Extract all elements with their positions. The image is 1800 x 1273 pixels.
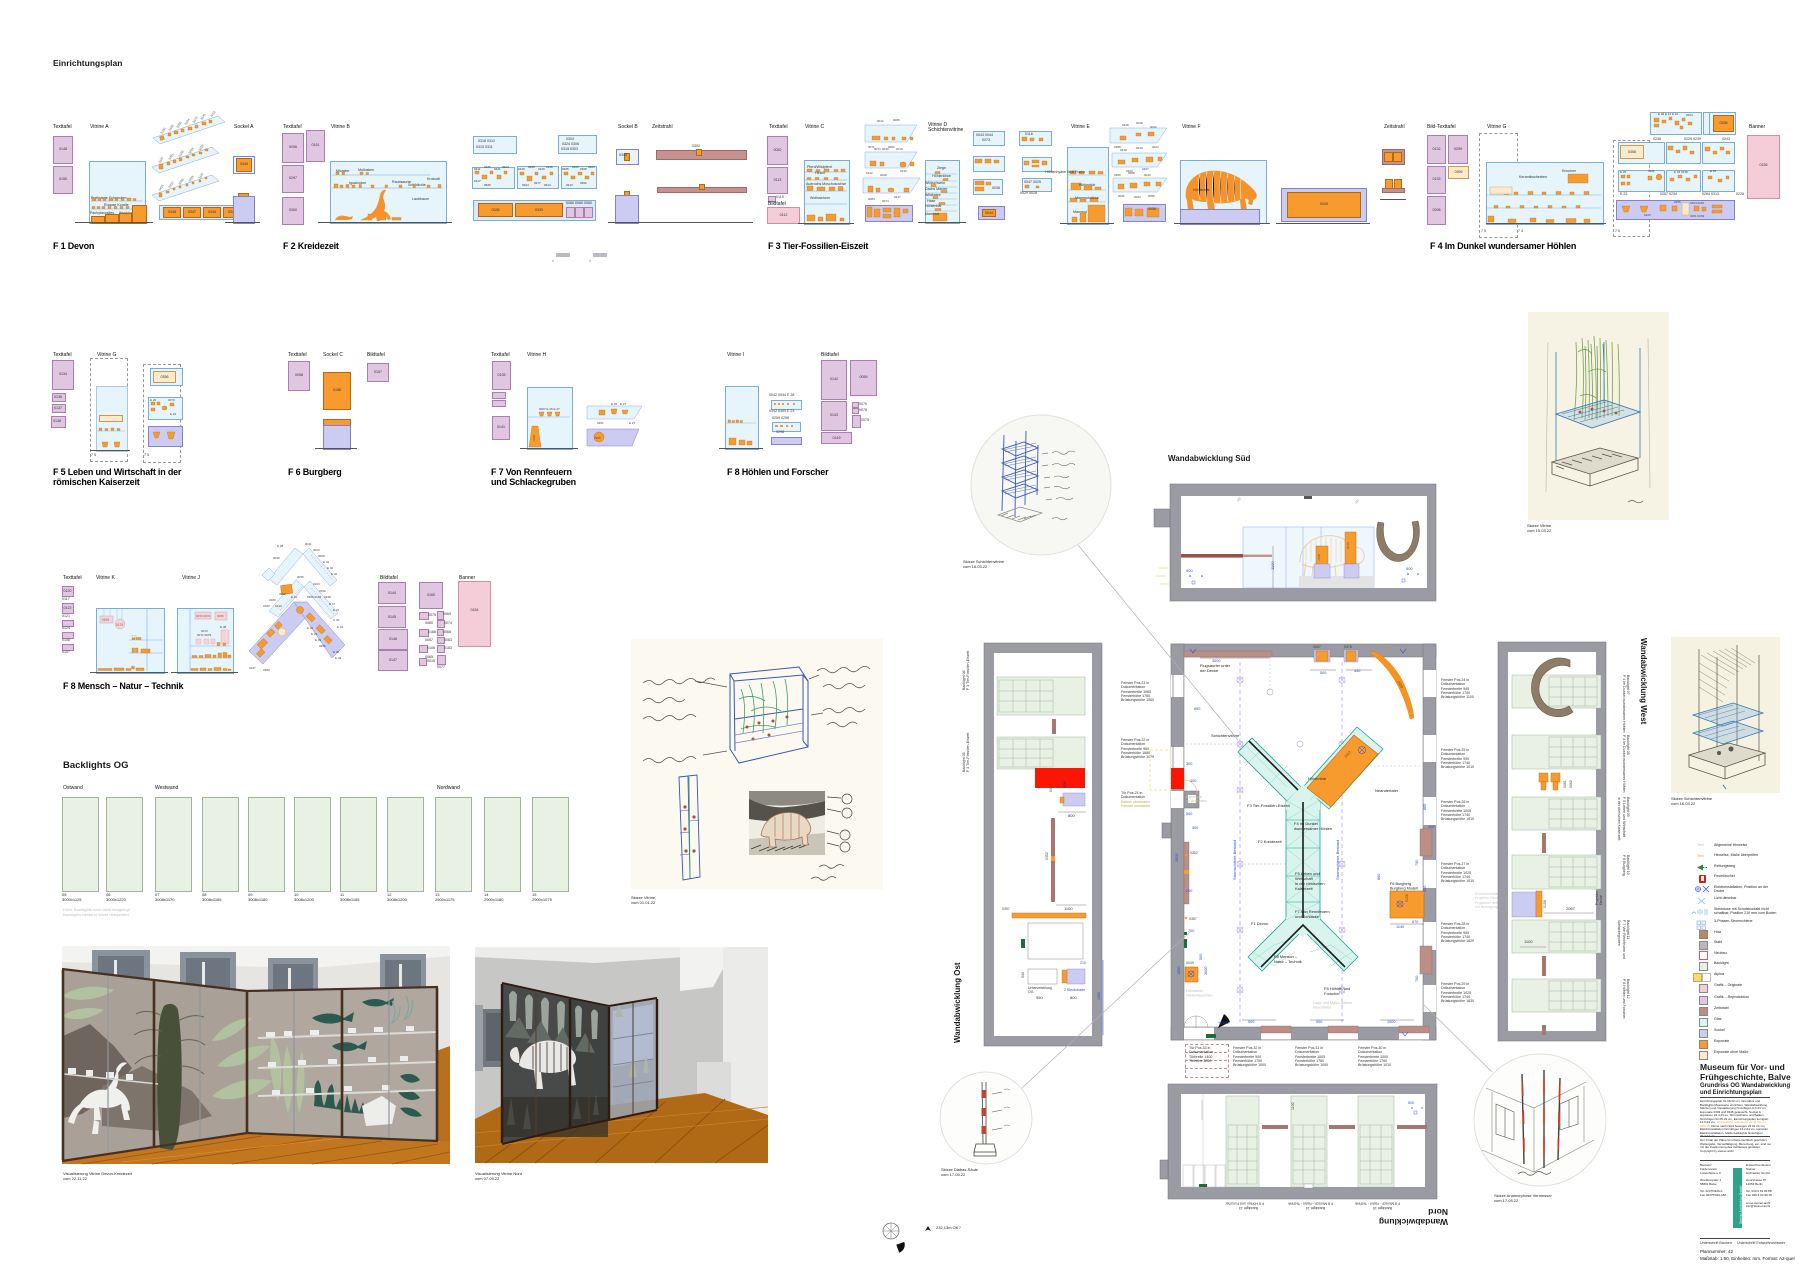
svg-text:E 26: E 26 (611, 402, 618, 406)
svg-text:0425: 0425 (484, 165, 491, 169)
svg-text:0084: 0084 (868, 197, 875, 201)
svg-text:0010: 0010 (896, 147, 903, 151)
svg-text:0061: 0061 (1563, 780, 1567, 788)
svg-text:E 28: E 28 (277, 544, 284, 548)
svg-text:0164: 0164 (184, 118, 191, 126)
svg-text:0052: 0052 (279, 592, 286, 596)
svg-text:670: 670 (1412, 920, 1418, 924)
svg-text:544: 544 (1021, 972, 1025, 978)
svg-text:900: 900 (1248, 1020, 1254, 1024)
svg-text:0169: 0169 (1114, 173, 1121, 177)
svg-text:0255: 0255 (1674, 200, 1681, 204)
svg-text:0024: 0024 (1152, 145, 1159, 149)
svg-text:0340: 0340 (1049, 784, 1053, 792)
svg-text:0041: 0041 (1118, 194, 1125, 198)
svg-text:0165: 0165 (572, 165, 579, 169)
svg-text:0277: 0277 (534, 181, 541, 185)
svg-text:C 30: C 30 (333, 618, 340, 622)
svg-text:F 8 Mensch - Natur - Technik: F 8 Mensch - Natur - Technik (1355, 1202, 1400, 1206)
svg-text:E 43: E 43 (337, 625, 344, 629)
svg-text:0541: 0541 (200, 113, 207, 121)
svg-text:0062: 0062 (1569, 780, 1573, 788)
svg-text:0030: 0030 (273, 556, 280, 560)
svg-text:Stromschiene Bestand: Stromschiene Bestand (1232, 840, 1237, 880)
svg-text:0221: 0221 (1648, 169, 1655, 173)
svg-text:0136: 0136 (900, 169, 907, 173)
svg-text:0352: 0352 (1190, 851, 1198, 855)
svg-text:0423: 0423 (1644, 213, 1651, 217)
svg-text:0378: 0378 (1344, 645, 1352, 649)
svg-text:0526: 0526 (484, 183, 491, 187)
svg-text:0022: 0022 (1150, 125, 1157, 129)
svg-text:0128: 0128 (168, 124, 175, 132)
svg-text:0007 E 26 E 27: 0007 E 26 E 27 (539, 407, 560, 411)
svg-text:665: 665 (1423, 804, 1427, 810)
svg-text:0028: 0028 (880, 173, 887, 177)
svg-text:Forscher: Forscher (1324, 991, 1340, 996)
svg-text:0183: 0183 (263, 604, 270, 608)
svg-text:0062: 0062 (888, 145, 895, 149)
svg-text:0448: 0448 (1120, 148, 1127, 152)
svg-text:1140: 1140 (1396, 925, 1404, 929)
svg-text:Decke: Decke (1599, 895, 1603, 905)
svg-text:0355: 0355 (594, 436, 601, 440)
svg-text:0071 0079: 0071 0079 (197, 633, 212, 637)
svg-text:0421: 0421 (494, 167, 501, 171)
svg-text:1100: 1100 (1270, 561, 1275, 570)
svg-text:F 8 Mensch - Natur - Technik: F 8 Mensch - Natur - Technik (1288, 1202, 1333, 1206)
svg-text:E 42: E 42 (323, 560, 330, 564)
svg-text:0449: 0449 (1136, 146, 1143, 150)
svg-text:Backlight 13: Backlight 13 (1239, 1206, 1258, 1210)
svg-text:0362: 0362 (580, 181, 587, 185)
svg-text:E 40: E 40 (327, 566, 334, 570)
svg-text:wundersamer Höhlen: wundersamer Höhlen (1294, 826, 1332, 831)
svg-text:1100: 1100 (1064, 906, 1073, 911)
svg-text:0055: 0055 (1148, 194, 1155, 198)
svg-text:300: 300 (1192, 826, 1198, 830)
svg-text:zu Anfassen: zu Anfassen (1186, 799, 1207, 803)
svg-text:0367: 0367 (1317, 554, 1321, 561)
svg-text:0211: 0211 (210, 110, 217, 118)
svg-text:0352: 0352 (1045, 852, 1049, 860)
svg-text:0180: 0180 (263, 668, 270, 672)
svg-text:700: 700 (1188, 929, 1194, 933)
svg-text:500: 500 (1199, 954, 1203, 960)
svg-text:0158: 0158 (1543, 900, 1547, 908)
svg-text:Schichtenvitrine: Schichtenvitrine (1211, 733, 1240, 738)
svg-text:2900: 2900 (1175, 854, 1179, 862)
svg-text:950: 950 (1036, 995, 1043, 1000)
svg-text:0455: 0455 (319, 644, 326, 648)
svg-text:400: 400 (1062, 781, 1067, 788)
svg-text:0378: 0378 (1346, 542, 1350, 549)
svg-text:500: 500 (1186, 812, 1192, 816)
svg-text:0005: 0005 (893, 118, 900, 122)
svg-text:0049: 0049 (1186, 961, 1194, 965)
svg-text:0073: 0073 (874, 147, 881, 151)
svg-text:0357: 0357 (1189, 917, 1197, 921)
svg-text:Stromschiene Bestand: Stromschiene Bestand (1335, 840, 1340, 880)
svg-text:und Schlacke: und Schlacke (1295, 914, 1320, 919)
svg-text:0201: 0201 (597, 421, 604, 425)
svg-text:0261 0263: 0261 0263 (1690, 214, 1705, 218)
svg-text:0073: 0073 (168, 398, 175, 402)
svg-text:F6 Burgberg: F6 Burgberg (1390, 882, 1411, 886)
svg-text:0057: 0057 (1313, 645, 1321, 649)
svg-text:0158: 0158 (1405, 894, 1409, 902)
svg-text:0308: 0308 (580, 167, 587, 171)
svg-text:0417: 0417 (474, 179, 481, 183)
svg-text:300: 300 (1186, 762, 1192, 766)
svg-text:0064: 0064 (1134, 195, 1141, 199)
svg-text:900: 900 (1316, 1020, 1322, 1024)
svg-text:790: 790 (1415, 860, 1419, 866)
svg-text:überprüfen: überprüfen (1313, 1006, 1331, 1010)
svg-text:0411: 0411 (474, 167, 481, 171)
svg-text:E 25: E 25 (1620, 170, 1627, 174)
svg-text:0264 0262: 0264 0262 (1690, 201, 1705, 205)
svg-text:0129: 0129 (538, 167, 545, 171)
svg-text:0238: 0238 (324, 595, 331, 599)
svg-text:0313: 0313 (566, 183, 573, 187)
svg-text:0074: 0074 (882, 199, 889, 203)
svg-text:210: 210 (1080, 961, 1086, 965)
svg-text:Burgberg Modell: Burgberg Modell (1390, 887, 1418, 891)
svg-text:E 41: E 41 (333, 608, 340, 612)
svg-text:860: 860 (1377, 874, 1381, 880)
svg-text:1850: 1850 (1097, 992, 1101, 1000)
svg-text:3000: 3000 (1204, 967, 1208, 975)
svg-text:1850: 1850 (1177, 967, 1181, 975)
svg-text:500: 500 (1406, 566, 1413, 571)
svg-text:0449: 0449 (518, 167, 525, 171)
svg-text:0122: 0122 (866, 171, 873, 175)
svg-text:0523: 0523 (502, 165, 509, 169)
svg-text:450: 450 (1354, 669, 1360, 673)
svg-text:3000: 3000 (1212, 659, 1220, 663)
svg-text:0152: 0152 (319, 589, 326, 593)
svg-text:0179: 0179 (192, 116, 199, 124)
svg-text:Höhlenbär: Höhlenbär (1308, 776, 1327, 781)
svg-text:0183: 0183 (269, 598, 276, 602)
svg-text:Natur – Technik: Natur – Technik (1274, 959, 1302, 964)
svg-text:500: 500 (1186, 568, 1193, 573)
svg-text:0012: 0012 (877, 119, 884, 123)
svg-text:E 39: E 39 (315, 638, 322, 642)
svg-text:Wettertauschen: Wettertauschen (1186, 994, 1213, 998)
svg-text:0324: 0324 (522, 183, 529, 187)
svg-text:OG: OG (1028, 990, 1034, 994)
svg-text:0175: 0175 (116, 623, 123, 627)
svg-text:0143: 0143 (275, 604, 282, 608)
svg-text:F1 Devon: F1 Devon (1251, 921, 1268, 926)
svg-text:500: 500 (1320, 671, 1326, 675)
svg-text:0136: 0136 (546, 165, 553, 169)
svg-text:Neandertaler: Neandertaler (1375, 788, 1399, 793)
svg-text:0029: 0029 (318, 554, 325, 558)
svg-text:E 27: E 27 (629, 421, 636, 425)
svg-text:E 34: E 34 (311, 632, 318, 636)
svg-text:E 49: E 49 (335, 656, 342, 660)
svg-text:der Decke: der Decke (1200, 668, 1219, 673)
svg-text:0357: 0357 (532, 435, 536, 442)
svg-text:E 09 E 12 E 10: E 09 E 12 E 10 (1658, 112, 1679, 116)
svg-text:F3 Tier-Fossilien-Eiszeit: F3 Tier-Fossilien-Eiszeit (1247, 803, 1291, 808)
svg-text:E 45: E 45 (333, 650, 340, 654)
svg-text:F 8 Höhlen und Forscher: F 8 Höhlen und Forscher (1224, 1202, 1264, 1206)
svg-text:E 36: E 36 (307, 626, 314, 630)
svg-text:0021: 0021 (305, 542, 312, 546)
svg-text:500: 500 (1408, 1101, 1414, 1105)
svg-text:E 27: E 27 (620, 402, 627, 406)
svg-text:E 20: E 20 (150, 398, 157, 402)
svg-text:E 40: E 40 (331, 572, 338, 576)
svg-text:Backlight 14: Backlight 14 (1306, 1206, 1325, 1210)
svg-text:E 47: E 47 (329, 602, 336, 606)
svg-text:0200: 0200 (176, 121, 183, 129)
svg-text:F2 Kreidezeit: F2 Kreidezeit (1258, 839, 1282, 844)
svg-text:650: 650 (1194, 707, 1200, 711)
svg-text:0291: 0291 (168, 153, 175, 161)
svg-text:0407: 0407 (1142, 167, 1149, 171)
svg-text:E 18 0238: E 18 0238 (1674, 170, 1688, 174)
svg-text:0914: 0914 (544, 183, 551, 187)
svg-text:0357: 0357 (1002, 907, 1010, 911)
svg-text:Hörstation: Hörstation (1186, 989, 1203, 993)
svg-text:420: 420 (1423, 886, 1427, 892)
svg-text:1000: 1000 (1387, 1020, 1395, 1024)
svg-text:E 24: E 24 (170, 412, 177, 416)
svg-text:E 31: E 31 (291, 595, 298, 599)
svg-text:0018: 0018 (1136, 121, 1143, 125)
svg-text:0197: 0197 (249, 666, 256, 670)
svg-text:0085: 0085 (1128, 171, 1135, 175)
svg-text:2067: 2067 (1566, 906, 1576, 911)
svg-text:0127: 0127 (158, 156, 165, 164)
svg-text:1100: 1100 (1524, 939, 1533, 944)
svg-text:Kaiserzeit: Kaiserzeit (1295, 886, 1313, 891)
svg-text:0023: 0023 (313, 548, 320, 552)
svg-text:0203: 0203 (588, 165, 595, 169)
svg-text:+2160: +2160 (1218, 1021, 1229, 1025)
svg-text:0066: 0066 (217, 614, 224, 618)
svg-text:0305: 0305 (562, 167, 569, 171)
svg-text:700: 700 (1415, 976, 1419, 982)
svg-text:0072 0072: 0072 0072 (196, 614, 211, 618)
svg-text:800: 800 (1070, 995, 1077, 1000)
svg-text:0355 0194: 0355 0194 (307, 595, 322, 599)
svg-text:0212: 0212 (168, 181, 175, 189)
svg-text:E 48: E 48 (220, 625, 227, 629)
svg-text:1100: 1100 (1291, 1102, 1295, 1110)
svg-text:0447: 0447 (894, 195, 901, 199)
svg-text:0415: 0415 (158, 184, 165, 192)
svg-text:0254: 0254 (1686, 113, 1693, 117)
svg-text:400: 400 (1428, 825, 1434, 829)
svg-text:0103: 0103 (313, 582, 320, 586)
svg-text:Lage und Maße Balken: Lage und Maße Balken (1313, 1001, 1352, 1005)
svg-text:0446: 0446 (1122, 123, 1129, 127)
svg-text:0130: 0130 (160, 127, 167, 135)
svg-text:0190: 0190 (102, 618, 109, 622)
svg-text:0095: 0095 (297, 575, 304, 579)
svg-text:E 16: E 16 (1710, 169, 1717, 173)
svg-text:400: 400 (1190, 779, 1196, 783)
svg-text:0043: 0043 (1144, 173, 1151, 177)
svg-text:800: 800 (1068, 813, 1075, 818)
svg-text:2 Steckdosen: 2 Steckdosen (1064, 988, 1085, 992)
svg-text:200: 200 (1186, 889, 1192, 893)
svg-text:0305: 0305 (528, 165, 535, 169)
